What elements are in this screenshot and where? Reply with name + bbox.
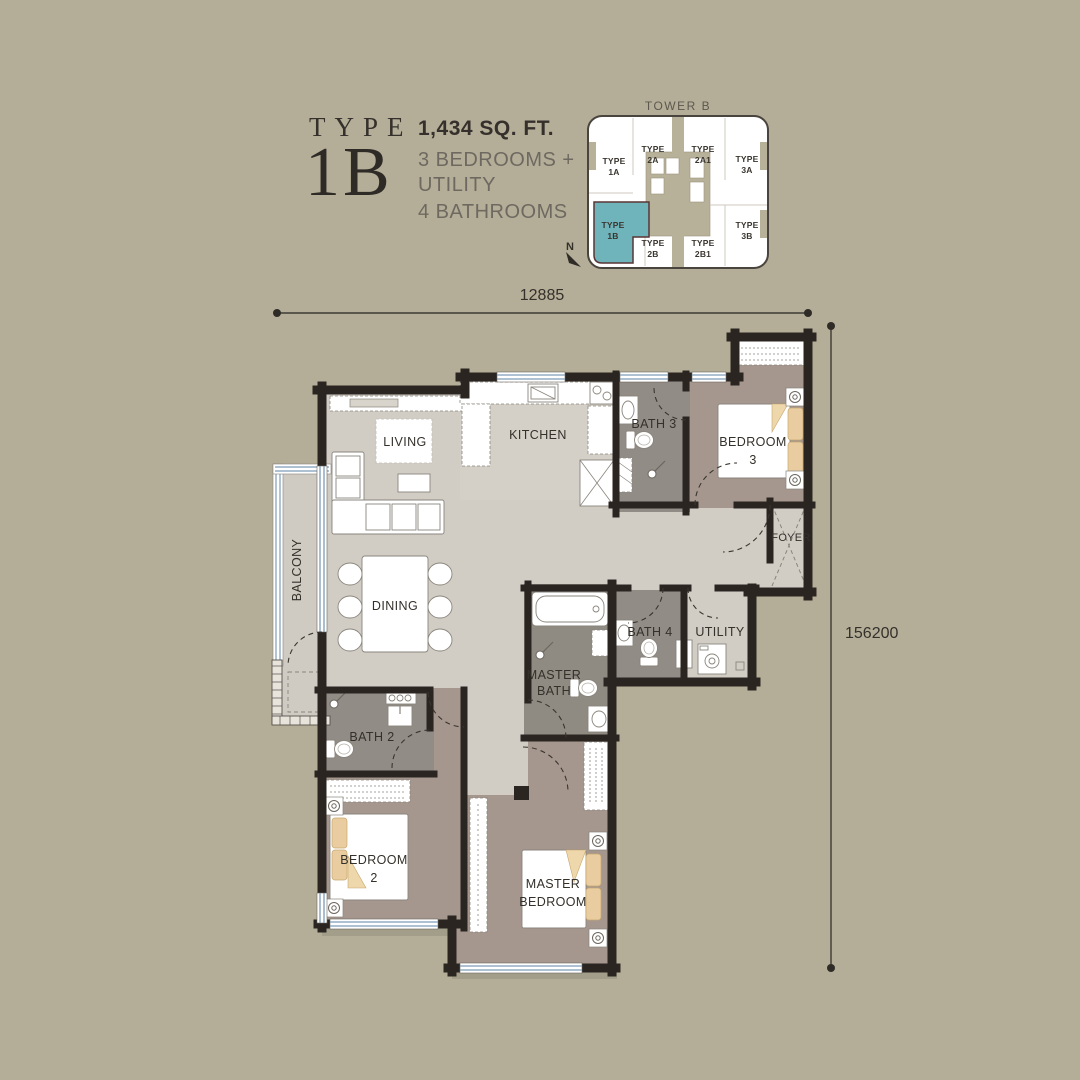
- kitchen-counter-left: [462, 404, 490, 466]
- floorplan-page: TYPE 1B 1,434 SQ. FT. 3 BEDROOMS + UTILI…: [0, 0, 1080, 1080]
- pillow: [586, 888, 601, 920]
- master-bath-niche: [592, 630, 610, 656]
- bedroom2-label-1: BEDROOM: [340, 853, 407, 867]
- kitchen-window: [497, 372, 565, 382]
- kp-unit-1b: TYPE: [601, 220, 624, 230]
- bedroom2-window: [330, 919, 438, 929]
- bath2-shelf: [386, 692, 416, 704]
- ac-unit-icon: [589, 832, 607, 850]
- ac-unit-icon: [325, 797, 343, 815]
- pillow: [788, 408, 803, 440]
- master-bedroom-label-2: BEDROOM: [519, 895, 586, 909]
- master-bath-sink: [588, 706, 610, 732]
- ac-unit-icon: [786, 471, 804, 489]
- bath3-window: [620, 372, 668, 382]
- kp-unit-3b: TYPE: [735, 220, 758, 230]
- coffee-table: [398, 474, 430, 492]
- bedroom3-wardrobe: [737, 341, 805, 365]
- kitchen-label: KITCHEN: [509, 428, 567, 442]
- svg-text:1A: 1A: [608, 167, 619, 177]
- bedroom3-label-1: BEDROOM: [719, 435, 786, 449]
- svg-text:2B: 2B: [647, 249, 658, 259]
- balcony-label: BALCONY: [290, 538, 304, 601]
- svg-text:2A: 2A: [647, 155, 658, 165]
- svg-text:3B: 3B: [741, 231, 752, 241]
- ac-unit-icon: [786, 388, 804, 406]
- master-closet: [470, 798, 487, 932]
- bedroom2-side-window: [317, 893, 327, 923]
- kp-unit-1a: TYPE: [602, 156, 625, 166]
- balcony-railing: [273, 464, 283, 666]
- wall-stub: [514, 786, 529, 800]
- tv: [350, 399, 398, 407]
- svg-text:2A1: 2A1: [695, 155, 711, 165]
- ac-unit-icon: [589, 929, 607, 947]
- bathtub: [532, 592, 608, 626]
- north-arrow-icon: [566, 252, 581, 267]
- svg-text:1B: 1B: [607, 231, 618, 241]
- master-bath-label-2: BATH: [537, 684, 571, 698]
- kp-unit-2b1: TYPE: [691, 238, 714, 248]
- ac-unit-icon: [325, 899, 343, 917]
- bedroom2-furniture: [325, 780, 410, 917]
- pillow: [586, 854, 601, 886]
- master-bedroom-label-1: MASTER: [526, 877, 581, 891]
- kp-unit-2a: TYPE: [641, 144, 664, 154]
- washing-machine: [698, 644, 726, 674]
- living-balcony-window: [317, 466, 327, 632]
- bath4-toilet: [640, 639, 658, 667]
- kp-unit-2a1: TYPE: [691, 144, 714, 154]
- floorplan-svg: TOWER B: [0, 0, 1080, 1080]
- key-plan: TOWER B: [566, 99, 768, 268]
- bedroom2-label-2: 2: [370, 871, 377, 885]
- key-plan-title: TOWER B: [645, 99, 711, 113]
- dining-label: DINING: [372, 599, 418, 613]
- bath3-label: BATH 3: [631, 417, 676, 431]
- dimension-width: 12885: [273, 287, 812, 317]
- hall-foyer-floor: [437, 500, 810, 594]
- ac-ledge-wall: [272, 660, 282, 724]
- master-bath-label-1: MASTER: [527, 668, 582, 682]
- dimension-height: 156200: [827, 322, 898, 972]
- north-compass: N: [566, 241, 581, 267]
- living-label: LIVING: [383, 435, 426, 449]
- master-bedroom-window: [460, 963, 582, 973]
- svg-text:3A: 3A: [741, 165, 752, 175]
- bedroom3-label-2: 3: [749, 453, 756, 467]
- pillow: [332, 818, 347, 848]
- utility-label: UTILITY: [695, 625, 745, 639]
- bath4-label: BATH 4: [627, 625, 672, 639]
- bedroom3-window: [692, 372, 726, 382]
- kp-unit-3a: TYPE: [735, 154, 758, 164]
- kp-unit-2b: TYPE: [641, 238, 664, 248]
- kitchen-cabinet: [588, 406, 614, 454]
- kitchen-hob: [590, 382, 614, 404]
- north-label: N: [566, 241, 574, 253]
- svg-text:2B1: 2B1: [695, 249, 711, 259]
- dimension-height-value: 156200: [845, 625, 898, 642]
- dimension-width-value: 12885: [520, 287, 565, 304]
- pillow: [788, 442, 803, 474]
- bath3-toilet: [626, 431, 654, 449]
- foyer-label: FOYER: [771, 532, 810, 544]
- bath2-label: BATH 2: [349, 730, 394, 744]
